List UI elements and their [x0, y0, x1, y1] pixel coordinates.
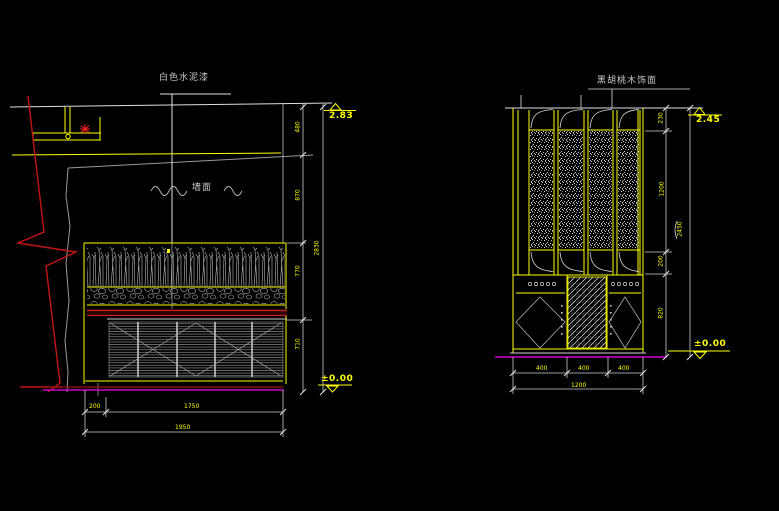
elevation-triangle-icon	[330, 104, 341, 111]
right-dim-v3: 200	[659, 255, 665, 266]
left-elevation-marker-icons	[318, 104, 356, 393]
left-dim-v2: 870	[296, 189, 302, 200]
red-cross-marker	[80, 124, 90, 134]
zero-level-triangle-icon	[694, 352, 706, 359]
right-dim-v1: 230	[659, 112, 665, 123]
left-elevation	[10, 94, 356, 437]
right-dim-b1: 400	[536, 366, 547, 372]
left-finish-label: 白色水泥漆	[159, 74, 209, 83]
left-wall-note: 墙面	[192, 184, 212, 193]
ceiling-beam-detail	[12, 107, 281, 155]
left-dim-v1: 480	[296, 121, 302, 132]
elevation-triangle-icon	[694, 108, 705, 115]
right-dim-b2: 400	[578, 366, 589, 372]
slat-panel-1	[529, 110, 554, 276]
left-dim-v-total: 2830	[315, 240, 321, 255]
left-elevation-top-value: 2.83	[329, 112, 353, 121]
left-dim-v3: 770	[296, 265, 302, 276]
right-elevation-zero-value: ±0.00	[694, 340, 726, 349]
top-lines	[505, 89, 703, 108]
slat-panel-4	[617, 110, 640, 276]
base-cabinet	[510, 275, 646, 353]
left-dim-b2: 1750	[184, 404, 199, 410]
left-dim-b-total: 1950	[175, 425, 190, 431]
louver-cabinet	[98, 319, 287, 396]
slat-panel-2	[558, 110, 584, 276]
left-dim-v4: 710	[296, 338, 302, 349]
left-elevation-zero-value: ±0.00	[321, 375, 353, 384]
right-dim-b-total: 1200	[571, 383, 586, 389]
right-dim-v2: 1200	[660, 181, 666, 196]
leader-mark	[167, 249, 170, 253]
cad-canvas: 白色水泥漆 墙面 2.83 ±0.00 黑胡桃木饰面 2.45 ±0.00 48…	[0, 0, 779, 511]
zero-level-triangle-icon	[327, 386, 338, 392]
right-finish-label: 黑胡桃木饰面	[597, 77, 657, 86]
right-dim-v4: 820	[659, 307, 665, 318]
slat-panel-3	[588, 110, 613, 276]
right-elevation-top-value: 2.45	[696, 116, 720, 125]
center-hatch-panel	[568, 277, 606, 348]
right-dim-v-total: 2450	[678, 221, 684, 236]
left-dim-b1: 200	[89, 404, 100, 410]
floor-lines-left	[43, 387, 284, 390]
right-dim-b3: 400	[618, 366, 629, 372]
